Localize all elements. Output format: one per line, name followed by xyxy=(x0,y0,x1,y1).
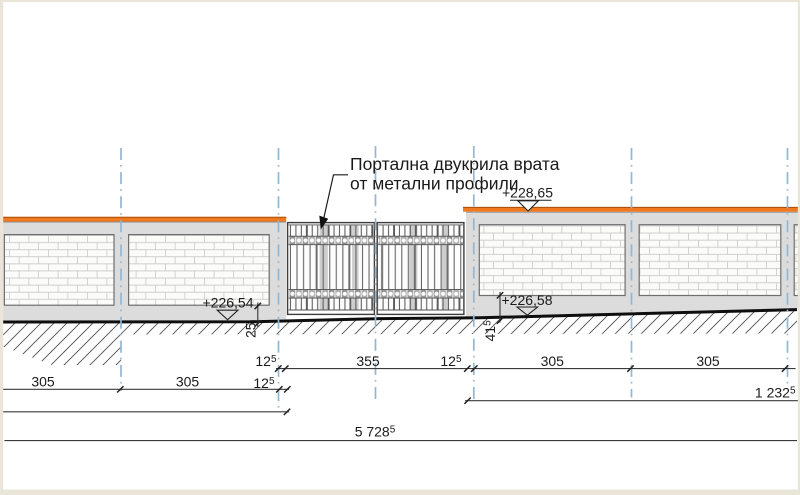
svg-text:305: 305 xyxy=(541,353,565,369)
svg-text:305: 305 xyxy=(176,373,200,389)
svg-text:25: 25 xyxy=(243,322,259,338)
svg-text:5 7285: 5 7285 xyxy=(355,424,396,440)
svg-text:+226,54: +226,54 xyxy=(203,294,254,310)
svg-text:+228,65: +228,65 xyxy=(502,184,553,200)
svg-text:1 2325: 1 2325 xyxy=(755,385,796,401)
svg-text:305: 305 xyxy=(31,373,55,389)
svg-text:355: 355 xyxy=(356,353,380,369)
svg-text:Портална двукрила врата: Портална двукрила врата xyxy=(350,154,560,174)
svg-text:305: 305 xyxy=(696,353,720,369)
svg-text:+226,58: +226,58 xyxy=(502,292,553,308)
svg-text:от метални профили: от метални профили xyxy=(350,174,519,194)
